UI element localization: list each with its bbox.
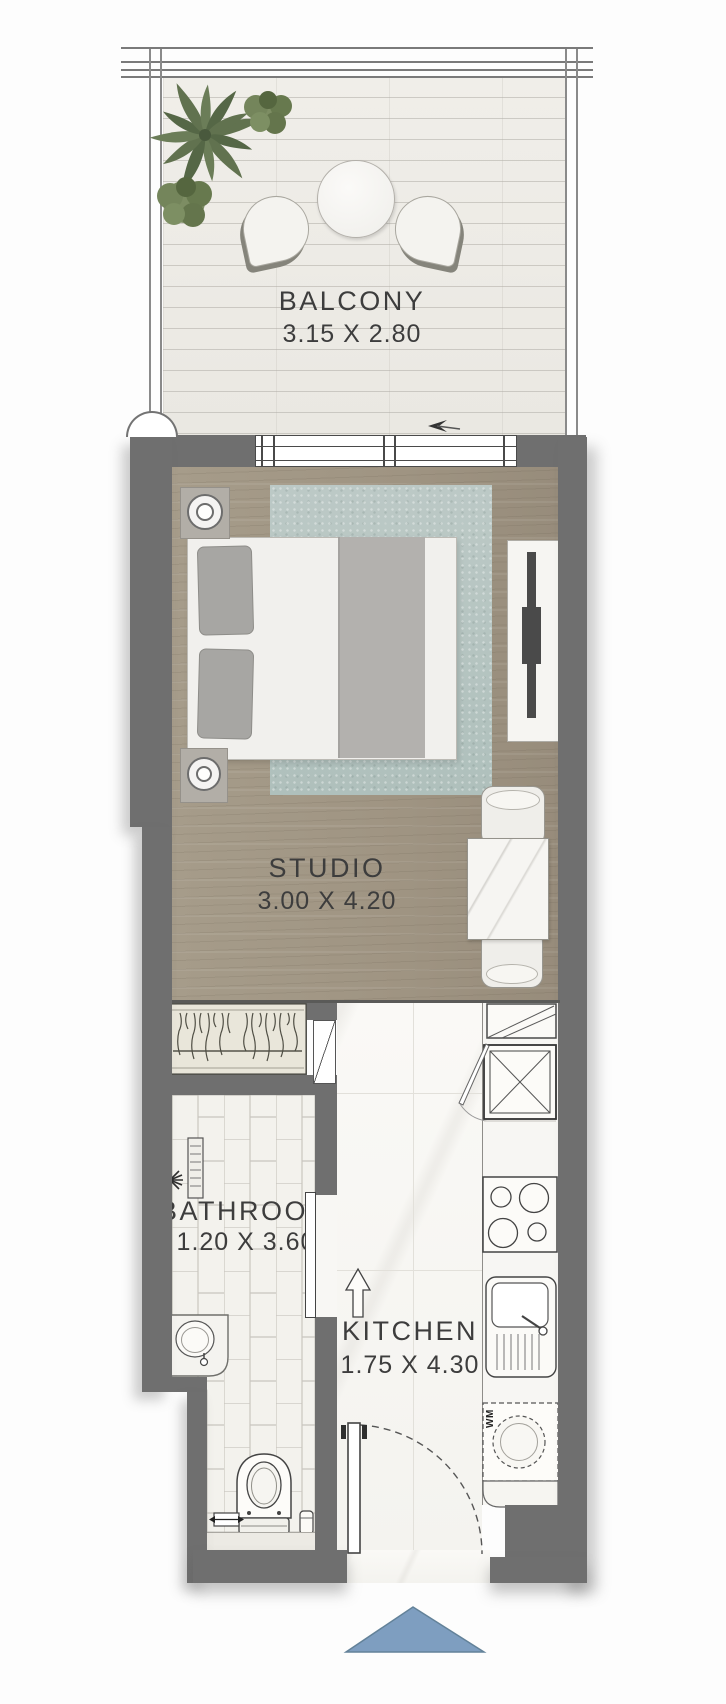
upper-cabinet-icon (487, 1004, 556, 1038)
fridge-icon (459, 1044, 556, 1121)
wall (142, 1075, 337, 1095)
tv-icon (522, 607, 541, 664)
wall (307, 1000, 337, 1020)
entrance-door (335, 1415, 495, 1565)
bush-icon (244, 91, 292, 134)
toilet-brush-icon (300, 1511, 313, 1534)
pillow (197, 545, 254, 635)
entrance-marker-icon (336, 1600, 492, 1660)
wall (558, 437, 587, 1583)
balcony-plants (120, 40, 580, 440)
floor-transition (172, 1000, 560, 1003)
wall (490, 1557, 587, 1583)
wardrobe (168, 1003, 307, 1075)
studio-label: STUDIO (207, 853, 447, 884)
lamp-icon (196, 766, 212, 782)
bathroom-sink (165, 1313, 230, 1379)
balcony-size: 3.15 X 2.80 (232, 320, 472, 349)
studio-size: 3.00 X 4.20 (207, 887, 447, 916)
balcony-label: BALCONY (232, 286, 472, 317)
toilet-paper-icon (209, 1513, 244, 1526)
wall (130, 437, 172, 827)
balcony-table (317, 160, 395, 238)
bathroom-door-opening (315, 1195, 337, 1317)
stove-icon (483, 1177, 557, 1252)
floor-plan: BALCONY 3.15 X 2.80 STUDIO 3.00 X 4.20 (0, 0, 726, 1704)
bed-blanket (338, 537, 425, 758)
dining-table (467, 838, 549, 940)
door-swing-arrow-icon (428, 420, 460, 432)
wall (505, 1505, 587, 1557)
balcony-chair-right (389, 190, 467, 268)
door-leaf-icon (348, 1423, 360, 1553)
wall (315, 1075, 337, 1195)
wall (315, 1317, 337, 1557)
wall (142, 1377, 207, 1392)
balcony-chair-left (237, 190, 315, 268)
pillow (197, 648, 254, 739)
door-swing-arc (360, 1425, 482, 1554)
dining-chair (481, 786, 545, 846)
entry-direction-arrow-icon (344, 1266, 372, 1320)
bush-icon (157, 177, 212, 227)
lamp-icon (196, 503, 214, 521)
wall (142, 827, 172, 1392)
window (255, 435, 517, 467)
closet-door-panel (313, 1020, 336, 1084)
bathroom-door-leaf (305, 1192, 316, 1318)
palm-plant-icon (150, 80, 265, 193)
